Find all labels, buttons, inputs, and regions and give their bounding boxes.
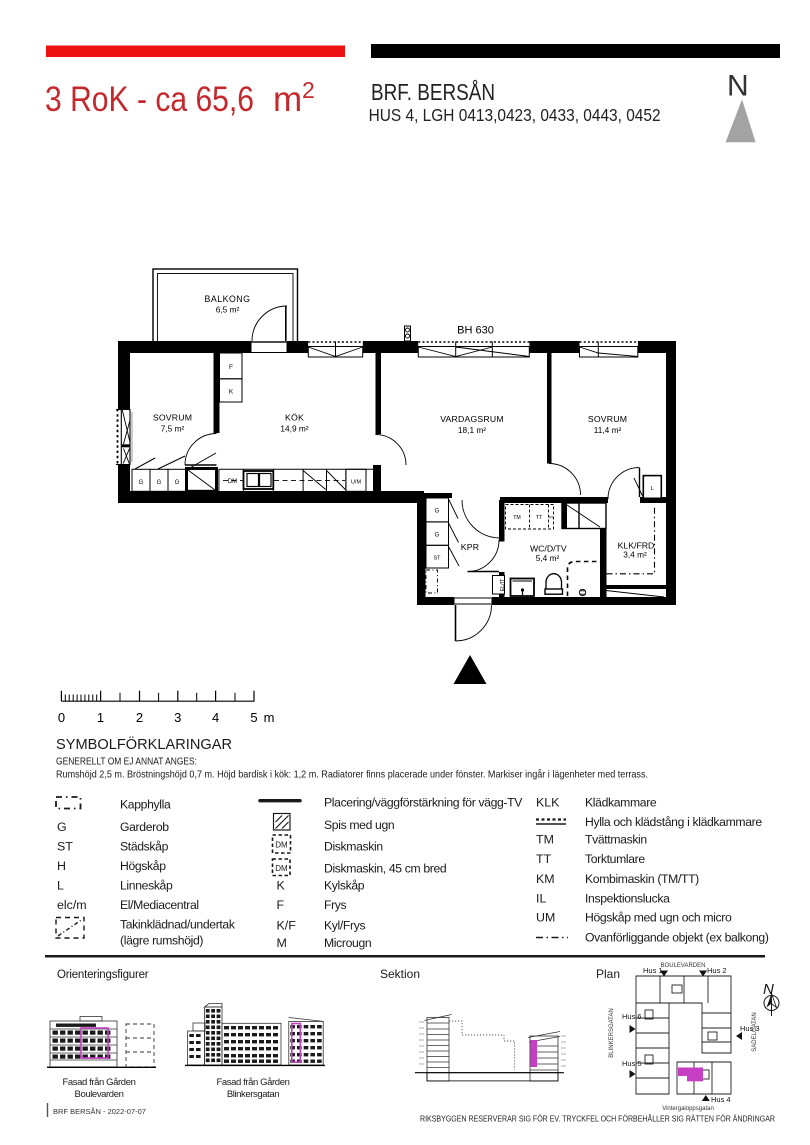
svg-text:7,5 m²: 7,5 m² <box>161 424 185 434</box>
svg-text:TT: TT <box>536 515 543 521</box>
svg-text:Kyl/Frys: Kyl/Frys <box>324 919 365 933</box>
svg-text:3 RoK - ca 65,6: 3 RoK - ca 65,6 <box>45 80 254 119</box>
svg-text:Frys: Frys <box>324 898 347 912</box>
svg-text:Hus 2: Hus 2 <box>707 966 727 975</box>
svg-text:Linneskåp: Linneskåp <box>120 879 173 893</box>
svg-text:BLINKERSGATAN: BLINKERSGATAN <box>609 1008 615 1057</box>
svg-text:Klädkammare: Klädkammare <box>585 796 657 810</box>
svg-text:Vintergaloppsgatan: Vintergaloppsgatan <box>662 1106 714 1112</box>
svg-text:Plan: Plan <box>596 967 620 981</box>
svg-text:2: 2 <box>302 77 315 103</box>
svg-text:IL: IL <box>536 892 546 906</box>
svg-text:DM: DM <box>275 841 288 850</box>
svg-text:Blinkersgatan: Blinkersgatan <box>227 1089 279 1100</box>
svg-text:0: 0 <box>58 710 65 725</box>
svg-text:m: m <box>264 710 275 725</box>
svg-text:Högskåp med ugn och micro: Högskåp med ugn och micro <box>585 911 732 925</box>
svg-text:HUS 4, LGH 0413,0423, 0433, 04: HUS 4, LGH 0413,0423, 0433, 0443, 0452 <box>369 105 661 125</box>
svg-text:U/M: U/M <box>351 480 362 486</box>
svg-text:m: m <box>273 80 302 119</box>
svg-text:1: 1 <box>97 710 104 725</box>
svg-text:TT: TT <box>536 852 552 866</box>
svg-text:G: G <box>435 533 440 539</box>
svg-text:5,4 m²: 5,4 m² <box>536 553 560 563</box>
svg-text:BRF. BERSÅN: BRF. BERSÅN <box>371 78 495 105</box>
svg-text:Inspektionslucka: Inspektionslucka <box>585 892 670 906</box>
svg-text:Tvättmaskin: Tvättmaskin <box>585 833 647 847</box>
svg-text:3: 3 <box>174 710 181 725</box>
svg-text:Fasad från Gården: Fasad från Gården <box>63 1077 136 1088</box>
svg-text:N: N <box>727 70 749 103</box>
svg-text:KLK: KLK <box>536 796 560 810</box>
svg-text:(lägre rumshöjd): (lägre rumshöjd) <box>120 934 203 948</box>
svg-text:Diskmaskin: Diskmaskin <box>324 840 383 854</box>
svg-text:SYMBOLFÖRKLARINGAR: SYMBOLFÖRKLARINGAR <box>56 735 232 753</box>
svg-text:G: G <box>175 480 180 486</box>
svg-text:M: M <box>277 936 287 950</box>
svg-text:Spis med ugn: Spis med ugn <box>324 818 394 832</box>
svg-text:BH 630: BH 630 <box>457 325 494 337</box>
svg-text:Hus 5: Hus 5 <box>622 1059 642 1068</box>
svg-text:WC/D/TV: WC/D/TV <box>530 544 567 554</box>
svg-text:Microugn: Microugn <box>324 936 371 950</box>
svg-text:11,4 m²: 11,4 m² <box>594 425 622 435</box>
svg-text:DM: DM <box>228 479 237 485</box>
svg-text:EL/IT: EL/IT <box>500 578 506 591</box>
svg-text:Fasad från Gården: Fasad från Gården <box>217 1077 290 1088</box>
svg-text:G: G <box>435 509 440 515</box>
svg-text:ST: ST <box>433 556 441 562</box>
svg-text:6,5 m²: 6,5 m² <box>216 305 240 315</box>
svg-text:SOVRUM: SOVRUM <box>153 413 192 423</box>
svg-text:F: F <box>277 898 285 912</box>
svg-text:TM: TM <box>513 515 521 521</box>
svg-text:BALKONG: BALKONG <box>204 294 250 304</box>
svg-text:RIKSBYGGEN RESERVERAR SIG FÖR: RIKSBYGGEN RESERVERAR SIG FÖR EV. TRYCKF… <box>420 1114 775 1124</box>
svg-text:SOVRUM: SOVRUM <box>588 414 627 424</box>
svg-text:Hus 6: Hus 6 <box>622 1012 642 1021</box>
svg-text:Takinklädnad/undertak: Takinklädnad/undertak <box>120 918 236 932</box>
svg-text:Hus 3: Hus 3 <box>740 1024 760 1033</box>
svg-text:Placering/väggförstärkning för: Placering/väggförstärkning för vägg-TV <box>324 796 523 810</box>
svg-text:KÖK: KÖK <box>285 413 304 423</box>
svg-text:Garderob: Garderob <box>120 820 169 834</box>
svg-text:elc/m: elc/m <box>57 898 87 912</box>
svg-text:G: G <box>139 480 144 486</box>
svg-text:El/Mediacentral: El/Mediacentral <box>120 898 199 912</box>
svg-text:Hus 4: Hus 4 <box>711 1095 731 1104</box>
svg-text:Högskåp: Högskåp <box>120 859 166 873</box>
svg-text:G: G <box>57 820 67 834</box>
svg-text:Kombimaskin (TM/TT): Kombimaskin (TM/TT) <box>585 872 699 886</box>
svg-text:Boulevarden: Boulevarden <box>75 1089 124 1100</box>
svg-text:BRF BERSÅN - 2022-07-07: BRF BERSÅN - 2022-07-07 <box>53 1107 146 1116</box>
svg-text:DM: DM <box>275 864 288 873</box>
svg-text:Torktumlare: Torktumlare <box>585 852 645 866</box>
svg-text:GENERELLT OM EJ ANNAT ANGES:: GENERELLT OM EJ ANNAT ANGES: <box>56 756 197 768</box>
svg-text:KM: KM <box>536 872 555 886</box>
svg-text:Hus 1: Hus 1 <box>643 966 663 975</box>
svg-text:ST: ST <box>57 840 73 854</box>
svg-text:K/F: K/F <box>277 919 297 933</box>
svg-text:Städskåp: Städskåp <box>120 840 169 854</box>
svg-text:K: K <box>229 389 234 396</box>
svg-text:Kapphylla: Kapphylla <box>120 798 171 812</box>
svg-text:14,9 m²: 14,9 m² <box>280 424 308 434</box>
svg-text:G: G <box>157 480 162 486</box>
svg-text:Orienteringsfigurer: Orienteringsfigurer <box>57 969 149 981</box>
svg-text:3,4 m²: 3,4 m² <box>623 550 647 560</box>
svg-text:2: 2 <box>136 710 143 725</box>
svg-text:18,1 m²: 18,1 m² <box>458 425 486 435</box>
svg-text:Sektion: Sektion <box>380 967 420 981</box>
svg-text:L: L <box>57 879 64 893</box>
svg-text:Diskmaskin, 45 cm bred: Diskmaskin, 45 cm bred <box>324 862 446 876</box>
svg-text:VARDAGSRUM: VARDAGSRUM <box>440 414 504 424</box>
svg-text:Hylla och klädstång i klädkamm: Hylla och klädstång i klädkammare <box>585 815 762 829</box>
svg-text:K: K <box>277 879 286 893</box>
svg-text:TM: TM <box>536 833 554 847</box>
svg-text:5: 5 <box>250 710 257 725</box>
svg-text:Kylskåp: Kylskåp <box>324 879 365 893</box>
svg-text:m: m <box>549 515 553 520</box>
svg-text:Rumshöjd 2,5 m. Bröstningshöjd: Rumshöjd 2,5 m. Bröstningshöjd 0,7 m. Hö… <box>56 769 648 781</box>
svg-text:BOULEVARDEN: BOULEVARDEN <box>661 963 706 969</box>
svg-text:F: F <box>229 364 233 371</box>
svg-text:4: 4 <box>212 710 219 725</box>
svg-text:KPR: KPR <box>461 542 479 552</box>
svg-text:Ovanförliggande objekt (ex ba: Ovanförliggande objekt (ex balkong) <box>585 931 769 945</box>
svg-text:UM: UM <box>536 911 555 925</box>
svg-text:H: H <box>57 859 66 873</box>
